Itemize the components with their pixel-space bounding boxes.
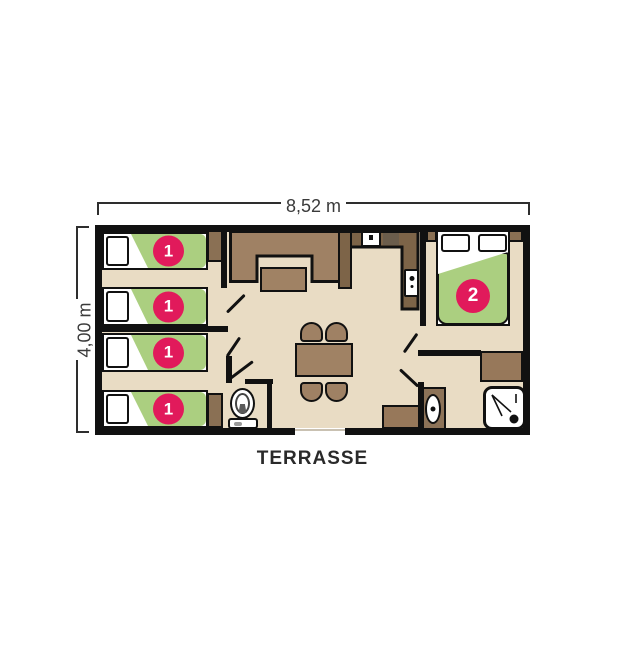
basin-bowl (425, 394, 441, 424)
dining-table (295, 343, 353, 377)
faucet-dot (369, 235, 373, 240)
stool (300, 322, 323, 342)
single-bed: 1 (102, 333, 208, 372)
bed-badge: 1 (153, 394, 184, 425)
wc-wall (267, 379, 272, 428)
toilet-icon (230, 388, 255, 419)
single-bed: 1 (102, 232, 208, 270)
interior-wall (418, 350, 481, 356)
bathroom-wardrobe (480, 351, 523, 382)
width-dimension: 8,52 m (97, 200, 530, 216)
single-bed: 1 (102, 390, 208, 428)
drain-dot (431, 407, 436, 412)
pillow-icon (478, 234, 507, 252)
pillow-icon (106, 236, 129, 266)
appliance-dot (409, 276, 414, 281)
interior-wall (95, 326, 228, 332)
bed-badge: 1 (153, 236, 184, 267)
pillow-icon (106, 291, 129, 322)
outer-wall-right (523, 225, 530, 435)
kitchen-cabinet (338, 231, 352, 289)
appliance-dot (410, 285, 413, 288)
dimension-line (76, 360, 78, 433)
bed-badge: 1 (153, 291, 184, 322)
floor-plan-page: 8,52 m 4,00 m (0, 0, 617, 654)
double-bed: 2 (436, 230, 510, 326)
pillow-icon (106, 337, 129, 368)
dimension-line (76, 226, 78, 299)
terrace-label: TERRASSE (95, 448, 530, 470)
terrace-door-opening (295, 429, 345, 431)
single-bed: 1 (102, 287, 208, 326)
shower-detail-icon (486, 389, 523, 427)
dimension-line (97, 202, 281, 204)
stool (325, 322, 348, 342)
stove-icon (383, 233, 399, 245)
sink-icon (361, 231, 381, 247)
flush-button (234, 422, 242, 426)
outer-wall-bottom (95, 428, 295, 435)
width-dimension-label: 8,52 m (286, 196, 341, 217)
interior-wall (420, 232, 426, 326)
wardrobe (207, 393, 223, 428)
depth-dimension: 4,00 m (76, 226, 94, 433)
interior-wall (418, 382, 424, 428)
cabinet (382, 405, 420, 429)
floor-plan: 1 1 1 1 (95, 225, 530, 435)
pillow-icon (441, 234, 470, 252)
outer-wall-bottom (345, 428, 530, 435)
bed-badge: 1 (153, 337, 184, 368)
interior-wall (221, 232, 227, 288)
pillow-icon (106, 394, 129, 424)
bed-badge: 2 (456, 279, 490, 313)
depth-dimension-label: 4,00 m (75, 302, 96, 357)
outer-wall-top (95, 225, 530, 232)
shower-icon (483, 386, 526, 430)
dimension-line (346, 202, 530, 204)
coffee-table (260, 267, 307, 292)
appliance-icon (404, 269, 419, 297)
